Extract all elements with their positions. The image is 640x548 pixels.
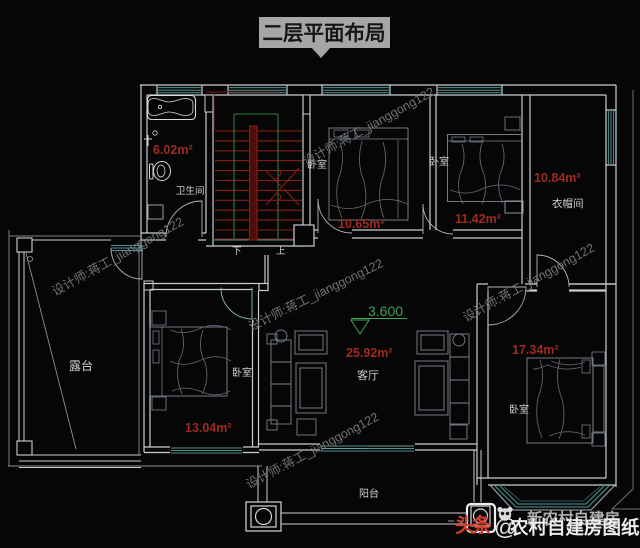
svg-text:17.34m²: 17.34m² [512, 343, 559, 357]
svg-text:露台: 露台 [69, 358, 93, 373]
svg-text:下: 下 [232, 246, 242, 257]
svg-text:10.65m²: 10.65m² [338, 217, 385, 231]
svg-text:衣帽间: 衣帽间 [552, 197, 584, 210]
svg-text:10.84m²: 10.84m² [534, 171, 581, 185]
svg-text:25.92m²: 25.92m² [346, 346, 393, 360]
svg-text:13.04m²: 13.04m² [185, 421, 232, 435]
svg-text:卫生间: 卫生间 [176, 185, 205, 197]
svg-text:二层平面布局: 二层平面布局 [263, 21, 386, 45]
svg-text:卧室: 卧室 [232, 366, 252, 379]
svg-text:11.42m²: 11.42m² [455, 212, 501, 226]
svg-text:上: 上 [276, 246, 286, 257]
svg-text:卧室: 卧室 [429, 155, 449, 168]
svg-text:6.02m²: 6.02m² [153, 143, 193, 157]
svg-text:3.600: 3.600 [368, 303, 403, 319]
svg-text:农村自建房图纸: 农村自建房图纸 [509, 517, 640, 538]
svg-text:头条: 头条 [455, 513, 493, 537]
svg-text:阳台: 阳台 [359, 487, 379, 500]
svg-text:卧室: 卧室 [509, 403, 529, 416]
svg-text:客厅: 客厅 [357, 368, 379, 382]
